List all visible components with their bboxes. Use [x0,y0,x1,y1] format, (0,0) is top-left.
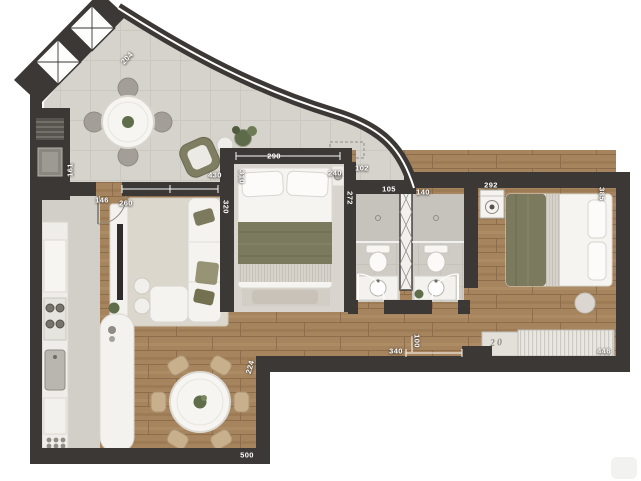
bed2-pillow-2 [588,242,606,280]
bed1-blanket [238,222,332,264]
living-room [110,198,228,331]
wall-bath-bottom-b [384,300,432,314]
tall-cabinet [44,240,66,292]
wall-bedroom1-left [220,162,234,312]
toilet1-bowl [369,252,387,272]
watermark-badge [611,457,637,479]
sofa-throw [195,261,220,286]
stove [44,298,66,340]
sofa-ottoman [150,286,188,322]
bar-stool-2 [134,298,150,314]
wall-bath-bottom-c [458,300,470,314]
bed2-knit-throw [546,194,560,286]
bed1-pillow-2 [286,171,328,197]
bed1-pillow-1 [241,171,283,197]
dim-label-385: 385 [598,187,607,201]
dim-label-146: 146 [95,196,109,205]
wall-entry [42,182,96,196]
pouf [575,293,595,313]
floor-plan-drawing [0,0,641,481]
toilet2-bowl [427,252,445,272]
shaft-duct [400,186,412,290]
dresser-print-number: 20 [490,337,505,349]
wall-bottom-left [30,448,270,464]
wall-bottom-right [256,356,630,372]
bed2-blanket [506,194,546,286]
island-faucet [108,326,116,334]
dim-label-446: 446 [597,347,611,356]
dim-label-140: 140 [416,188,430,197]
dim-label-340: 340 [389,347,403,356]
dim-label-161: 161 [66,163,75,177]
wall-bath-bottom-a [348,300,358,314]
wall-hall-stub [462,346,492,360]
wall-bedroom1-right [344,162,356,312]
plant-island [109,303,120,314]
bed1-knit-throw [238,264,332,282]
dim-label-102: 102 [355,164,369,173]
tv-screen [117,224,123,300]
dim-label-310: 310 [238,170,247,184]
dim-label-292: 292 [484,181,498,190]
dim-label-430: 430 [208,171,222,180]
bedroom1 [238,166,344,306]
dim-label-105: 105 [382,185,396,194]
dim-label-290: 290 [267,152,281,161]
dim-label-320: 320 [222,200,231,214]
dim-label-240: 240 [328,169,342,178]
plant-terrace-table [122,116,134,128]
kitchen-faucet [53,355,57,359]
kitchen-island [100,314,134,452]
bar-stool-1 [134,278,150,294]
dim-label-100: 100 [413,334,422,348]
dishwasher [44,398,66,434]
wall-step [256,356,270,464]
shower1-floor [356,194,400,242]
bed1-bench [252,290,318,304]
dim-label-260: 260 [119,199,133,208]
dim-label-272: 272 [346,191,355,205]
floor-plan-image: 204 161 146 260 430 310 320 290 240 102 … [0,0,641,481]
plant-bathroom2 [415,290,424,299]
wall-bedroom2-divider [464,186,478,288]
wall-right [616,172,630,372]
wall-top-right [404,172,630,188]
dim-label-500: 500 [240,451,254,460]
bed2-pillow-1 [588,200,606,238]
